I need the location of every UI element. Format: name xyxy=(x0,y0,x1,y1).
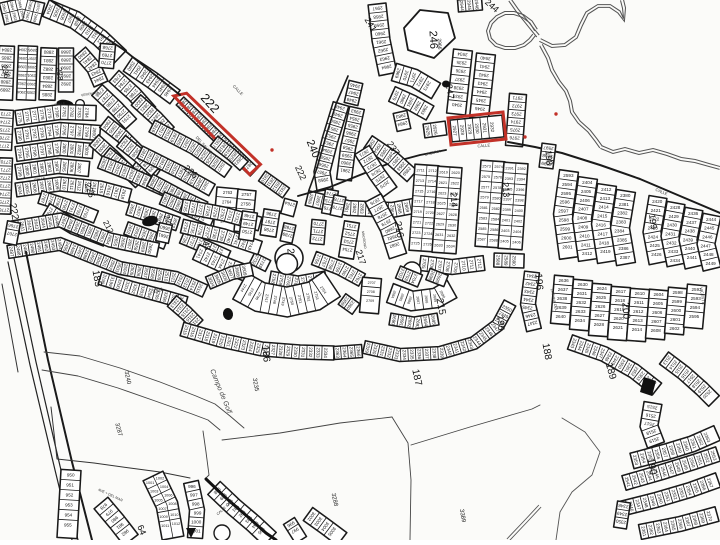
svg-text:2611: 2611 xyxy=(69,180,75,191)
svg-text:2634: 2634 xyxy=(446,245,454,249)
svg-text:2881: 2881 xyxy=(43,58,54,63)
svg-text:2578: 2578 xyxy=(493,186,501,190)
svg-text:2903: 2903 xyxy=(27,82,36,86)
svg-text:2409: 2409 xyxy=(578,225,589,230)
svg-text:2927: 2927 xyxy=(452,125,458,136)
svg-text:2330: 2330 xyxy=(293,346,299,357)
svg-text:2770: 2770 xyxy=(0,159,11,164)
svg-text:2800: 2800 xyxy=(61,143,67,154)
svg-text:2620: 2620 xyxy=(451,171,459,175)
svg-text:2593: 2593 xyxy=(563,173,574,178)
svg-text:2596: 2596 xyxy=(559,200,570,205)
svg-text:2613: 2613 xyxy=(632,318,643,323)
svg-text:2404: 2404 xyxy=(582,180,593,185)
svg-text:955: 955 xyxy=(64,522,72,527)
svg-text:952: 952 xyxy=(66,493,74,498)
svg-text:2425: 2425 xyxy=(650,243,661,248)
svg-text:2775: 2775 xyxy=(0,127,10,133)
svg-text:2399: 2399 xyxy=(502,208,510,212)
svg-text:2599: 2599 xyxy=(560,226,571,231)
svg-text:2573: 2573 xyxy=(482,164,490,168)
svg-text:2976: 2976 xyxy=(509,135,520,141)
svg-text:999: 999 xyxy=(194,510,202,515)
svg-text:2863: 2863 xyxy=(359,203,365,214)
svg-text:2448: 2448 xyxy=(703,252,714,257)
svg-text:2413: 2413 xyxy=(600,196,611,201)
svg-text:2417: 2417 xyxy=(597,231,608,236)
svg-text:2614: 2614 xyxy=(632,327,643,332)
svg-text:2630: 2630 xyxy=(448,224,456,228)
svg-text:2623: 2623 xyxy=(438,191,446,195)
svg-text:2412: 2412 xyxy=(601,187,612,192)
svg-text:2364: 2364 xyxy=(342,347,348,358)
svg-text:2428: 2428 xyxy=(670,205,681,210)
svg-text:2707: 2707 xyxy=(368,281,376,285)
svg-text:2583: 2583 xyxy=(479,217,487,221)
svg-text:2945: 2945 xyxy=(466,0,472,11)
svg-text:2634: 2634 xyxy=(575,318,586,323)
svg-text:2337: 2337 xyxy=(424,348,430,359)
svg-text:2607: 2607 xyxy=(651,319,662,324)
svg-text:2798: 2798 xyxy=(76,126,82,137)
svg-text:2329: 2329 xyxy=(285,346,291,357)
svg-text:2772: 2772 xyxy=(0,175,11,180)
svg-text:2888: 2888 xyxy=(0,79,11,84)
svg-text:2628: 2628 xyxy=(594,322,605,327)
svg-text:2588: 2588 xyxy=(489,239,497,243)
svg-text:2436: 2436 xyxy=(688,211,699,216)
svg-text:2973: 2973 xyxy=(511,111,522,117)
svg-text:2625: 2625 xyxy=(596,295,607,300)
svg-text:2387: 2387 xyxy=(620,255,631,260)
svg-text:2384: 2384 xyxy=(614,229,625,234)
svg-text:2415: 2415 xyxy=(597,214,608,219)
svg-text:2584: 2584 xyxy=(491,218,499,222)
svg-text:2385: 2385 xyxy=(617,237,628,242)
svg-text:2405: 2405 xyxy=(500,240,508,244)
svg-text:2880: 2880 xyxy=(43,50,54,55)
svg-text:199: 199 xyxy=(647,213,659,229)
svg-text:2885: 2885 xyxy=(42,92,53,97)
svg-text:2406: 2406 xyxy=(512,241,520,245)
svg-text:2895: 2895 xyxy=(28,48,37,52)
svg-text:2621: 2621 xyxy=(613,325,624,330)
svg-text:2599: 2599 xyxy=(672,299,683,304)
svg-text:2627: 2627 xyxy=(594,313,605,318)
svg-text:2720: 2720 xyxy=(425,211,433,215)
svg-text:2334: 2334 xyxy=(323,348,328,359)
svg-text:1002: 1002 xyxy=(156,476,164,480)
svg-text:2597: 2597 xyxy=(558,209,569,214)
svg-text:997: 997 xyxy=(190,493,198,498)
svg-text:2975: 2975 xyxy=(509,127,520,133)
svg-text:2414: 2414 xyxy=(598,205,609,210)
svg-text:2972: 2972 xyxy=(511,103,522,109)
svg-text:2929: 2929 xyxy=(467,124,473,135)
svg-text:2398: 2398 xyxy=(515,199,523,203)
svg-text:2715: 2715 xyxy=(415,189,423,193)
svg-text:2630: 2630 xyxy=(577,282,588,287)
svg-text:2328: 2328 xyxy=(278,345,284,356)
svg-text:998: 998 xyxy=(192,502,200,507)
svg-text:2600: 2600 xyxy=(671,308,682,313)
svg-text:2632: 2632 xyxy=(576,300,587,305)
svg-text:2336: 2336 xyxy=(417,349,423,360)
svg-text:2440: 2440 xyxy=(685,246,696,251)
svg-text:2402: 2402 xyxy=(514,220,522,224)
svg-text:2718: 2718 xyxy=(426,201,434,205)
svg-text:2626: 2626 xyxy=(595,304,606,309)
svg-text:2412: 2412 xyxy=(582,251,593,256)
svg-text:2897: 2897 xyxy=(28,56,37,60)
svg-text:2574: 2574 xyxy=(494,165,502,169)
svg-text:2605: 2605 xyxy=(653,301,664,306)
svg-text:2930: 2930 xyxy=(474,123,480,134)
svg-text:2445: 2445 xyxy=(704,226,715,231)
svg-text:2624: 2624 xyxy=(597,286,608,291)
svg-text:2714: 2714 xyxy=(428,180,436,184)
svg-text:2773: 2773 xyxy=(0,183,10,188)
svg-text:247: 247 xyxy=(444,83,456,99)
svg-text:2593: 2593 xyxy=(691,296,702,301)
svg-text:2966: 2966 xyxy=(436,38,443,50)
svg-text:2631: 2631 xyxy=(577,291,588,296)
svg-text:2598: 2598 xyxy=(672,290,683,295)
svg-text:2418: 2418 xyxy=(599,240,610,245)
svg-text:950: 950 xyxy=(67,473,75,478)
svg-text:2575: 2575 xyxy=(482,175,490,179)
svg-text:2589: 2589 xyxy=(503,255,508,266)
svg-text:2602: 2602 xyxy=(669,326,680,331)
svg-text:213: 213 xyxy=(500,182,511,198)
svg-text:2782: 2782 xyxy=(69,107,74,118)
svg-text:2801: 2801 xyxy=(69,144,75,155)
svg-text:2601: 2601 xyxy=(562,244,573,249)
svg-text:2902: 2902 xyxy=(18,81,27,85)
svg-text:2725: 2725 xyxy=(411,242,419,246)
svg-text:2633: 2633 xyxy=(575,309,586,314)
svg-text:2394: 2394 xyxy=(517,178,525,182)
svg-text:1000: 1000 xyxy=(191,519,202,524)
svg-text:2625: 2625 xyxy=(437,202,445,206)
svg-text:2885: 2885 xyxy=(1,55,12,60)
svg-text:2444: 2444 xyxy=(706,217,717,222)
svg-text:2381: 2381 xyxy=(619,202,630,207)
svg-text:195: 195 xyxy=(495,315,506,331)
svg-text:2424: 2424 xyxy=(648,234,659,239)
svg-text:1009: 1009 xyxy=(159,515,167,519)
svg-text:2594: 2594 xyxy=(690,305,701,310)
svg-text:2884: 2884 xyxy=(42,84,53,89)
svg-text:2622: 2622 xyxy=(451,182,459,186)
svg-text:2769: 2769 xyxy=(101,52,112,58)
svg-text:2777: 2777 xyxy=(0,143,9,149)
svg-text:2582: 2582 xyxy=(491,207,499,211)
svg-text:996: 996 xyxy=(188,484,196,489)
svg-text:2595: 2595 xyxy=(561,191,572,196)
svg-text:2901: 2901 xyxy=(27,73,36,77)
svg-text:2434: 2434 xyxy=(670,258,681,263)
svg-text:2601: 2601 xyxy=(670,317,681,322)
svg-text:2587: 2587 xyxy=(477,238,485,242)
svg-text:2338: 2338 xyxy=(432,348,438,359)
svg-text:2771: 2771 xyxy=(312,228,323,234)
svg-text:2446: 2446 xyxy=(702,235,713,240)
svg-text:2904: 2904 xyxy=(17,90,26,94)
svg-text:2410: 2410 xyxy=(579,233,590,238)
svg-text:2716: 2716 xyxy=(427,190,435,194)
svg-text:2382: 2382 xyxy=(617,211,628,216)
svg-text:2585: 2585 xyxy=(478,227,486,231)
svg-text:2426: 2426 xyxy=(651,252,662,257)
svg-text:2971: 2971 xyxy=(512,95,523,101)
svg-text:2722: 2722 xyxy=(425,222,433,226)
svg-text:2796: 2796 xyxy=(61,125,67,136)
svg-text:2773: 2773 xyxy=(0,111,11,117)
svg-text:2432: 2432 xyxy=(666,240,677,245)
svg-text:2757: 2757 xyxy=(241,192,252,197)
svg-text:2391: 2391 xyxy=(505,166,513,170)
svg-text:2896: 2896 xyxy=(19,56,28,60)
svg-text:2580: 2580 xyxy=(492,197,500,201)
svg-text:2333: 2333 xyxy=(315,347,320,358)
svg-text:2619: 2619 xyxy=(439,170,447,174)
svg-text:2946: 2946 xyxy=(474,0,480,10)
svg-text:2405: 2405 xyxy=(581,189,592,194)
svg-text:2781: 2781 xyxy=(62,107,67,118)
svg-text:1004: 1004 xyxy=(160,485,168,489)
svg-text:2770: 2770 xyxy=(101,60,112,66)
svg-text:2640: 2640 xyxy=(555,314,566,319)
svg-text:2862: 2862 xyxy=(352,203,358,214)
svg-text:1010: 1010 xyxy=(170,513,178,517)
svg-text:2621: 2621 xyxy=(439,181,447,185)
svg-text:2439: 2439 xyxy=(683,237,694,242)
svg-text:2771: 2771 xyxy=(0,167,11,172)
svg-text:2774: 2774 xyxy=(0,119,11,125)
svg-text:2366: 2366 xyxy=(356,346,362,357)
svg-text:2581: 2581 xyxy=(479,206,487,210)
svg-text:2802: 2802 xyxy=(76,144,82,155)
svg-text:2365: 2365 xyxy=(349,347,355,358)
svg-text:1007: 1007 xyxy=(158,507,166,511)
svg-text:196: 196 xyxy=(532,273,544,291)
svg-text:2711: 2711 xyxy=(417,168,425,172)
svg-text:2594: 2594 xyxy=(562,182,573,187)
svg-text:2404: 2404 xyxy=(513,230,521,234)
svg-text:2339: 2339 xyxy=(439,348,445,359)
svg-text:2577: 2577 xyxy=(481,185,489,189)
svg-text:2411: 2411 xyxy=(581,242,591,247)
svg-text:2612: 2612 xyxy=(633,309,644,314)
svg-text:2764: 2764 xyxy=(222,200,232,205)
svg-text:2449: 2449 xyxy=(705,261,716,266)
svg-text:2776: 2776 xyxy=(0,135,10,141)
svg-text:2437: 2437 xyxy=(686,220,697,225)
svg-text:2889: 2889 xyxy=(60,58,71,63)
svg-text:2637: 2637 xyxy=(558,287,569,292)
svg-text:953: 953 xyxy=(65,502,73,507)
svg-text:2331: 2331 xyxy=(300,347,306,358)
svg-text:2712: 2712 xyxy=(428,169,436,173)
svg-text:238: 238 xyxy=(54,67,64,82)
svg-text:2419: 2419 xyxy=(600,249,611,254)
svg-text:2631: 2631 xyxy=(435,233,443,237)
svg-text:2899: 2899 xyxy=(28,65,37,69)
svg-text:1005: 1005 xyxy=(154,498,162,502)
svg-text:2588: 2588 xyxy=(495,255,500,266)
svg-text:2900: 2900 xyxy=(18,73,27,77)
svg-text:2332: 2332 xyxy=(308,347,313,358)
svg-text:2799: 2799 xyxy=(84,127,90,138)
svg-text:2383: 2383 xyxy=(616,220,627,225)
svg-text:2604: 2604 xyxy=(653,292,664,297)
svg-text:2892: 2892 xyxy=(60,82,71,87)
svg-text:2944: 2944 xyxy=(459,0,465,11)
svg-text:2883: 2883 xyxy=(42,75,53,80)
svg-text:2335: 2335 xyxy=(409,349,415,360)
svg-text:2763: 2763 xyxy=(223,190,233,195)
svg-text:2617: 2617 xyxy=(616,289,627,294)
svg-text:2770: 2770 xyxy=(313,221,324,227)
svg-text:2392: 2392 xyxy=(517,167,525,171)
svg-text:186: 186 xyxy=(259,345,271,363)
svg-text:198: 198 xyxy=(543,150,554,166)
svg-text:2421: 2421 xyxy=(651,208,662,213)
svg-text:2429: 2429 xyxy=(668,214,679,219)
svg-text:2420: 2420 xyxy=(652,199,663,204)
svg-text:2598: 2598 xyxy=(559,218,570,223)
svg-text:2606: 2606 xyxy=(652,310,663,315)
svg-text:1003: 1003 xyxy=(150,490,158,494)
svg-text:2636: 2636 xyxy=(558,278,569,283)
svg-text:2590: 2590 xyxy=(511,255,516,266)
svg-text:2721: 2721 xyxy=(413,221,421,225)
svg-text:2632: 2632 xyxy=(447,234,455,238)
svg-text:2726: 2726 xyxy=(423,243,431,247)
svg-text:2595: 2595 xyxy=(689,314,700,319)
svg-text:2586: 2586 xyxy=(490,228,498,232)
svg-text:1012: 1012 xyxy=(172,522,180,526)
svg-text:1001: 1001 xyxy=(146,481,154,485)
svg-text:2363: 2363 xyxy=(335,348,341,359)
svg-text:2430: 2430 xyxy=(667,223,678,228)
svg-text:2724: 2724 xyxy=(424,232,432,236)
svg-text:2401: 2401 xyxy=(502,219,510,223)
svg-text:2447: 2447 xyxy=(700,243,711,248)
svg-text:2709: 2709 xyxy=(366,299,374,303)
svg-text:2723: 2723 xyxy=(412,231,420,235)
svg-text:2611: 2611 xyxy=(634,300,644,305)
svg-text:2719: 2719 xyxy=(413,210,421,214)
svg-text:2416: 2416 xyxy=(596,223,607,228)
svg-text:2633: 2633 xyxy=(434,244,442,248)
svg-text:2610: 2610 xyxy=(635,291,646,296)
svg-text:2608: 2608 xyxy=(651,328,662,333)
svg-text:2772: 2772 xyxy=(312,236,323,242)
svg-text:2433: 2433 xyxy=(668,249,679,254)
svg-text:2408: 2408 xyxy=(577,216,588,221)
svg-text:2783: 2783 xyxy=(77,107,82,118)
svg-text:2334: 2334 xyxy=(402,350,408,361)
svg-text:2931: 2931 xyxy=(482,122,488,133)
svg-text:2396: 2396 xyxy=(516,188,524,192)
svg-text:2932: 2932 xyxy=(489,122,495,133)
svg-text:2768: 2768 xyxy=(102,45,113,51)
svg-text:951: 951 xyxy=(66,483,74,488)
svg-text:2638: 2638 xyxy=(557,296,568,301)
svg-text:200: 200 xyxy=(619,302,631,320)
svg-text:1008: 1008 xyxy=(168,502,176,506)
svg-text:2894: 2894 xyxy=(19,47,28,51)
svg-text:2400: 2400 xyxy=(514,209,522,213)
svg-text:2898: 2898 xyxy=(18,64,27,68)
svg-text:2627: 2627 xyxy=(436,212,444,216)
svg-text:2407: 2407 xyxy=(578,207,589,212)
svg-text:1011: 1011 xyxy=(161,524,169,528)
svg-text:2441: 2441 xyxy=(687,255,698,260)
svg-text:2438: 2438 xyxy=(685,229,696,234)
svg-text:1006: 1006 xyxy=(164,494,172,498)
svg-text:2882: 2882 xyxy=(43,67,54,72)
svg-text:2393: 2393 xyxy=(505,177,513,181)
svg-text:2803: 2803 xyxy=(84,145,90,156)
svg-text:2784: 2784 xyxy=(84,107,89,118)
svg-text:2905: 2905 xyxy=(27,90,36,94)
svg-text:2928: 2928 xyxy=(459,125,465,136)
svg-text:2600: 2600 xyxy=(561,235,572,240)
svg-text:2717: 2717 xyxy=(414,200,422,204)
svg-text:2397: 2397 xyxy=(503,198,511,202)
svg-text:2884: 2884 xyxy=(1,47,12,52)
svg-text:2386: 2386 xyxy=(618,246,629,251)
svg-text:2403: 2403 xyxy=(501,229,509,233)
svg-text:2579: 2579 xyxy=(480,196,488,200)
svg-text:2628: 2628 xyxy=(448,213,456,217)
svg-text:2431: 2431 xyxy=(665,232,676,237)
svg-text:2380: 2380 xyxy=(620,193,631,198)
svg-text:2629: 2629 xyxy=(436,223,444,227)
svg-text:2708: 2708 xyxy=(367,290,375,294)
svg-text:214: 214 xyxy=(448,192,459,208)
svg-text:2758: 2758 xyxy=(240,202,251,207)
svg-text:2774: 2774 xyxy=(0,191,10,196)
svg-text:954: 954 xyxy=(65,512,73,517)
svg-text:2889: 2889 xyxy=(0,87,11,92)
svg-text:2888: 2888 xyxy=(60,50,71,55)
svg-text:2406: 2406 xyxy=(580,198,591,203)
svg-text:2974: 2974 xyxy=(510,119,521,125)
svg-text:2576: 2576 xyxy=(494,176,502,180)
svg-text:2797: 2797 xyxy=(69,126,75,137)
svg-text:2713: 2713 xyxy=(416,179,424,183)
